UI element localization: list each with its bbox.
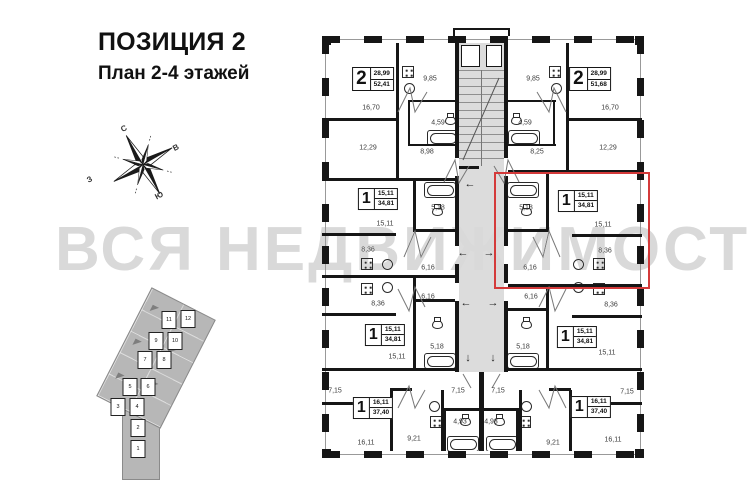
room-area-label-living: 15,11 (599, 350, 616, 357)
apartment-areas: 15,1134,81 (381, 325, 404, 345)
room-area-label-living: 16,11 (358, 440, 375, 447)
apartment-total-area: 34,81 (574, 338, 596, 347)
stair-direction-line (463, 78, 499, 160)
apt-lowmid-right[interactable]: 115,1134,81 (557, 326, 597, 348)
apartment-rooms-count: 1 (359, 189, 374, 209)
apt-bottom-left[interactable]: 116,1137,40 (353, 397, 393, 419)
apartment-areas: 16,1137,40 (369, 398, 392, 418)
apartment-rooms-count: 1 (354, 398, 369, 418)
apt-mid-left[interactable]: 115,1134,81 (358, 188, 398, 210)
room-area-label-hall: 8,98 (420, 149, 434, 156)
apartment-total-area: 51,68 (588, 80, 610, 89)
apartment-total-area: 34,81 (375, 200, 397, 209)
apartment-living-area: 15,11 (382, 325, 404, 335)
apartment-areas: 28,9952,41 (370, 68, 393, 90)
room-area-label-bath: 5,18 (431, 205, 445, 212)
apartment-total-area: 37,40 (370, 409, 392, 418)
room-area-label-hall: 8,25 (530, 149, 544, 156)
corridor-arrow-left: ← (461, 297, 472, 309)
room-area-label-hall: 7,15 (620, 389, 634, 396)
highlighted-apartment-box[interactable] (494, 172, 650, 289)
apartment-rooms-count: 2 (353, 68, 370, 90)
corridor-arrow-left: ← (465, 178, 476, 190)
apt-top-left[interactable]: 228,9952,41 (352, 67, 394, 91)
room-area-label-living: 15,11 (389, 354, 406, 361)
apartment-areas: 28,9951,68 (587, 68, 610, 90)
apartment-areas: 15,1134,81 (374, 189, 397, 209)
page: ПОЗИЦИЯ 2 План 2-4 этажей (0, 0, 750, 500)
room-area-label-kitchen: 8,36 (604, 302, 618, 309)
apartment-total-area: 52,41 (371, 80, 393, 89)
apartment-living-area: 28,99 (371, 69, 393, 79)
apartment-rooms-count: 1 (558, 327, 573, 347)
room-area-label-hall: 7,15 (328, 388, 342, 395)
room-area-label-bath: 5,18 (430, 344, 444, 351)
apartment-living-area: 16,11 (370, 398, 392, 408)
apartment-living-area: 15,11 (375, 189, 397, 199)
corridor-arrow-down: ↓ (490, 352, 496, 364)
apt-top-right[interactable]: 228,9951,68 (569, 67, 611, 91)
apt-bottom-right[interactable]: 116,1137,40 (571, 396, 611, 418)
apartment-total-area: 37,40 (588, 408, 610, 417)
corridor-arrow-down: ↓ (465, 352, 471, 364)
room-area-label-hall: 6,16 (524, 294, 538, 301)
apartment-living-area: 28,99 (588, 69, 610, 79)
room-area-label-bath: 4,59 (431, 120, 445, 127)
room-area-label-bedroom: 12,29 (359, 145, 377, 152)
room-area-label-living: 16,70 (601, 105, 619, 112)
room-area-label-kitchen: 8,36 (371, 301, 385, 308)
room-area-label-living: 16,70 (362, 105, 380, 112)
room-area-label-living: 16,11 (605, 437, 622, 444)
apartment-living-area: 16,11 (588, 397, 610, 407)
apartment-rooms-count: 1 (366, 325, 381, 345)
room-area-label-kitchen: 9,21 (546, 440, 560, 447)
room-area-label-bath: 5,18 (516, 344, 530, 351)
room-area-label-bath: 4,93 (484, 419, 498, 426)
corridor-arrow-right: → (488, 297, 499, 309)
apartment-living-area: 15,11 (574, 327, 596, 337)
room-area-label-bath: 4,59 (518, 120, 532, 127)
apartment-rooms-count: 2 (570, 68, 587, 90)
apt-lowmid-left[interactable]: 115,1134,81 (365, 324, 405, 346)
room-area-label-bath: 4,93 (453, 419, 467, 426)
room-area-label-hall: 7,15 (451, 388, 465, 395)
room-area-label-hall: 7,15 (491, 388, 505, 395)
apartment-areas: 16,1137,40 (587, 397, 610, 417)
apartment-total-area: 34,81 (382, 336, 404, 345)
room-area-label-kitchen: 9,85 (526, 76, 540, 83)
room-area-label-bedroom: 12,29 (599, 145, 617, 152)
room-area-label-kitchen: 9,21 (407, 436, 421, 443)
room-area-label-hall: 6,16 (421, 294, 435, 301)
room-area-label-kitchen: 9,85 (423, 76, 437, 83)
apartment-rooms-count: 1 (572, 397, 587, 417)
apartment-areas: 15,1134,81 (573, 327, 596, 347)
